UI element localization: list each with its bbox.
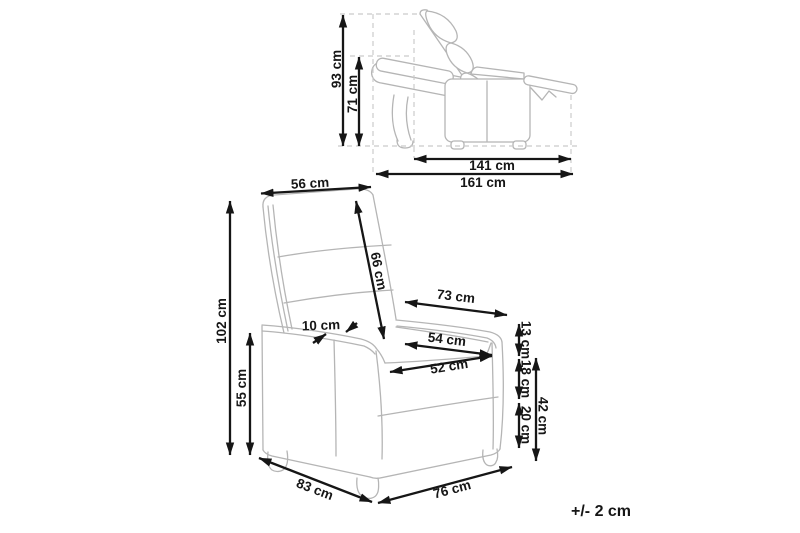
dim-label-42: 42 cm: [536, 397, 551, 435]
dim-armrest-above-seat: 13 cm: [519, 321, 534, 359]
dim-seat-width-front: 52 cm: [390, 356, 492, 377]
dim-base-height: 20 cm: [519, 403, 534, 448]
dim-label-93: 93 cm: [329, 50, 344, 88]
side-footrest: [523, 75, 578, 94]
dim-seat-cushion-thickness: 18 cm: [519, 359, 534, 399]
dim-label-73: 73 cm: [436, 287, 476, 307]
dim-label-102: 102 cm: [214, 298, 229, 344]
dim-reclined-total-depth: 161 cm: [376, 174, 573, 190]
dim-label-141: 141 cm: [469, 158, 515, 173]
dim-seat-width-back: 54 cm: [405, 330, 492, 355]
dim-label-54: 54 cm: [427, 330, 467, 350]
dim-label-13: 13 cm: [519, 321, 534, 359]
dim-width-armrest-outer: 73 cm: [405, 287, 507, 315]
dim-label-56: 56 cm: [291, 175, 330, 192]
dim-label-10: 10 cm: [302, 317, 341, 333]
dim-label-76: 76 cm: [432, 477, 473, 501]
dim-backrest-length: 66 cm: [356, 201, 390, 339]
tolerance-note: +/- 2 cm: [571, 503, 631, 520]
dim-reclined-backrest-height: 71 cm: [345, 57, 360, 146]
front-view-chair-drawing: [262, 189, 503, 499]
dim-backrest-top-width: 56 cm: [261, 175, 371, 194]
dim-base-width: 76 cm: [378, 467, 512, 503]
dim-seat-height: 42 cm: [536, 358, 551, 461]
dim-label-52: 52 cm: [429, 356, 469, 377]
dim-reclined-inner-depth: 141 cm: [414, 158, 571, 173]
dim-reclined-total-height: 93 cm: [329, 15, 344, 146]
dim-label-161: 161 cm: [460, 175, 506, 190]
side-view-chair-drawing: [370, 10, 578, 149]
diagram-svg: 93 cm 71 cm 141 cm 161 cm 56 cm 66 cm 10…: [0, 0, 800, 533]
dim-label-20: 20 cm: [519, 406, 534, 444]
dim-label-55: 55 cm: [234, 369, 249, 407]
recliner-dimension-diagram: 93 cm 71 cm 141 cm 161 cm 56 cm 66 cm 10…: [0, 0, 800, 533]
dim-total-height: 102 cm: [214, 201, 230, 455]
dim-label-18: 18 cm: [519, 360, 534, 398]
dim-label-71: 71 cm: [345, 75, 360, 113]
dim-armrest-height: 55 cm: [234, 333, 250, 455]
